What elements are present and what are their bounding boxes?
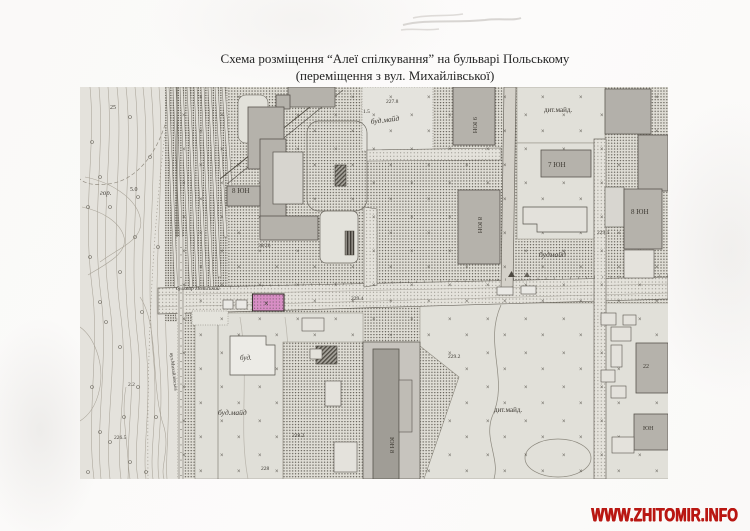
svg-text:ЮН: ЮН <box>643 426 654 432</box>
svg-text:7 ЮН: 7 ЮН <box>548 161 566 169</box>
svg-text:9 ЮН: 9 ЮН <box>471 117 478 134</box>
svg-text:ЮН 8: ЮН 8 <box>388 437 395 453</box>
svg-text:буд.майд: буд.майд <box>218 408 247 417</box>
svg-text:228.2: 228.2 <box>292 433 305 439</box>
svg-text:дит.майд.: дит.майд. <box>544 106 572 114</box>
svg-text:22: 22 <box>643 364 649 370</box>
svg-text:8 ЮН: 8 ЮН <box>232 187 250 195</box>
svg-text:×: × <box>264 299 269 308</box>
svg-text:дит.майд.: дит.майд. <box>494 406 522 414</box>
svg-text:гор.: гор. <box>100 189 112 197</box>
svg-text:буд.: буд. <box>240 354 252 362</box>
svg-text:1.5: 1.5 <box>363 109 370 115</box>
svg-text:будмайд: будмайд <box>539 250 566 259</box>
svg-text:229.1: 229.1 <box>597 230 610 236</box>
svg-text:2.2: 2.2 <box>128 382 135 388</box>
svg-text:229.2: 229.2 <box>448 354 461 360</box>
svg-text:25: 25 <box>110 105 116 111</box>
svg-text:228: 228 <box>261 466 270 472</box>
svg-text:8 ЮН: 8 ЮН <box>476 217 483 234</box>
svg-text:бульвар Польський: бульвар Польський <box>176 285 220 292</box>
svg-text:8 ЮН: 8 ЮН <box>631 208 649 216</box>
svg-text:38/26: 38/26 <box>258 243 271 249</box>
svg-text:227.8: 227.8 <box>386 99 399 105</box>
svg-text:229.4: 229.4 <box>351 296 364 302</box>
svg-text:226.5: 226.5 <box>114 435 127 441</box>
svg-text:5.0: 5.0 <box>130 187 138 193</box>
